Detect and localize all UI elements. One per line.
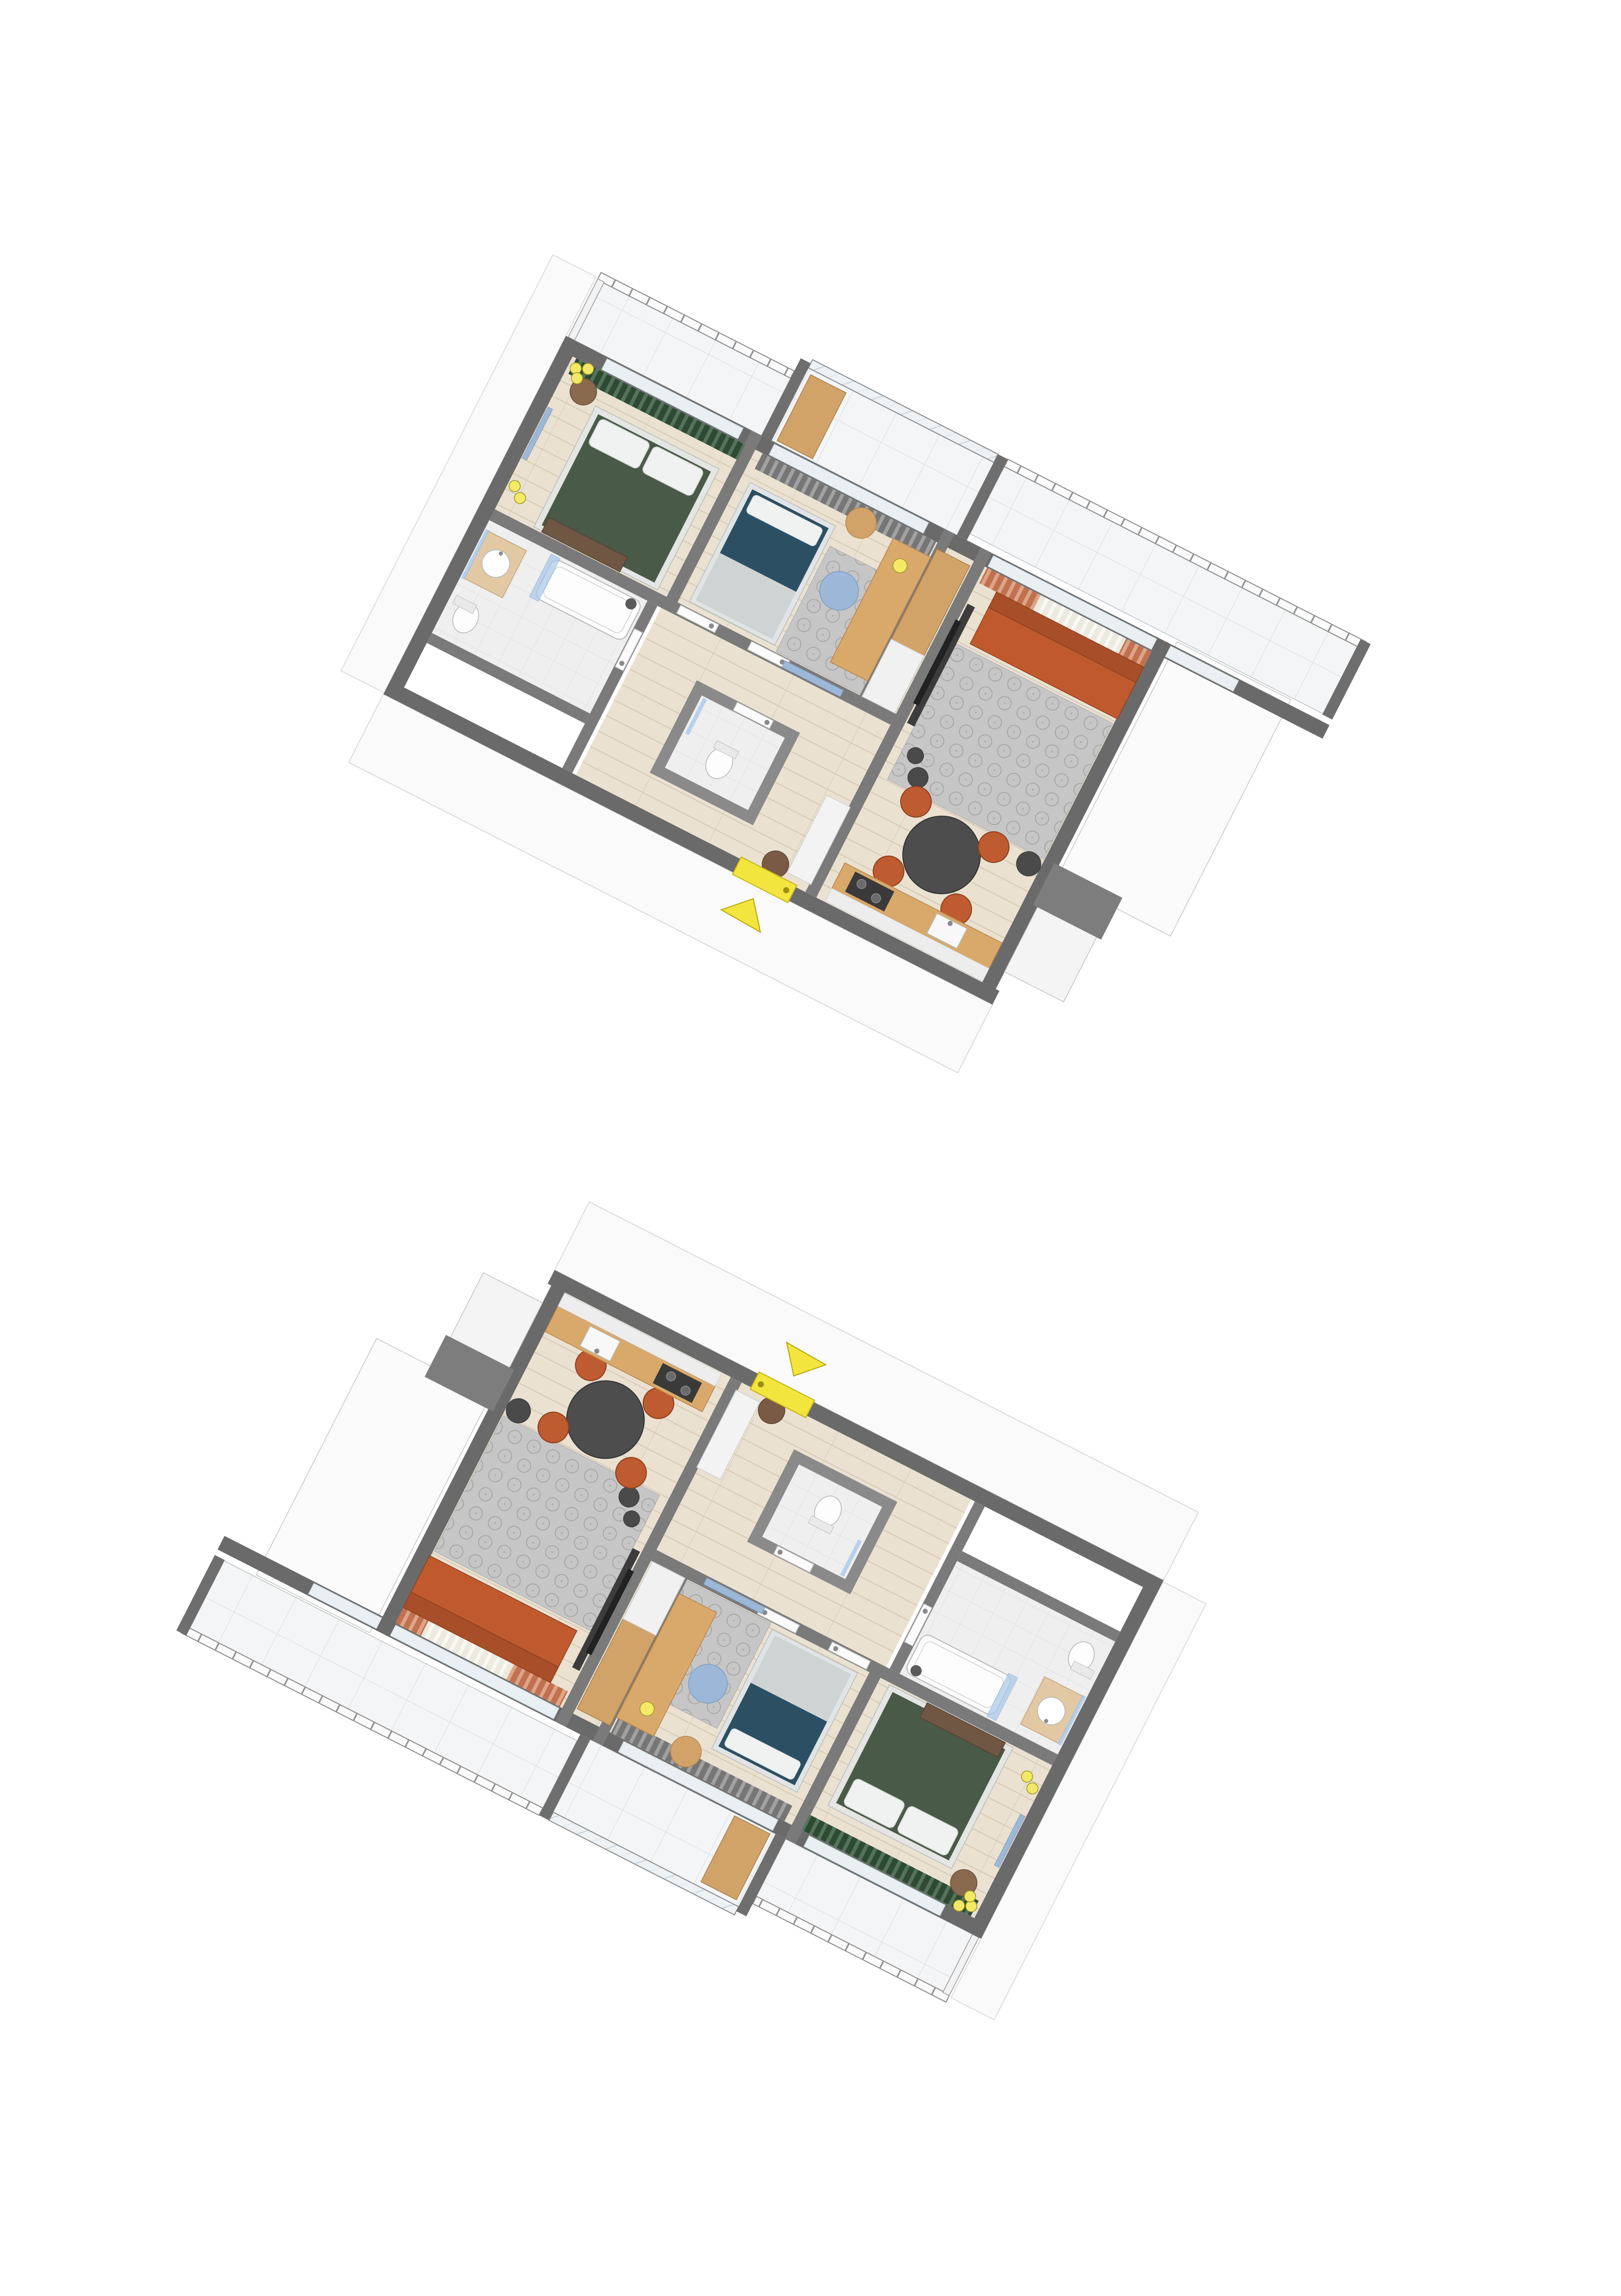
page bbox=[0, 0, 1621, 2296]
page-background bbox=[0, 0, 1621, 2296]
axonometric-floor-plans bbox=[0, 0, 1621, 2296]
